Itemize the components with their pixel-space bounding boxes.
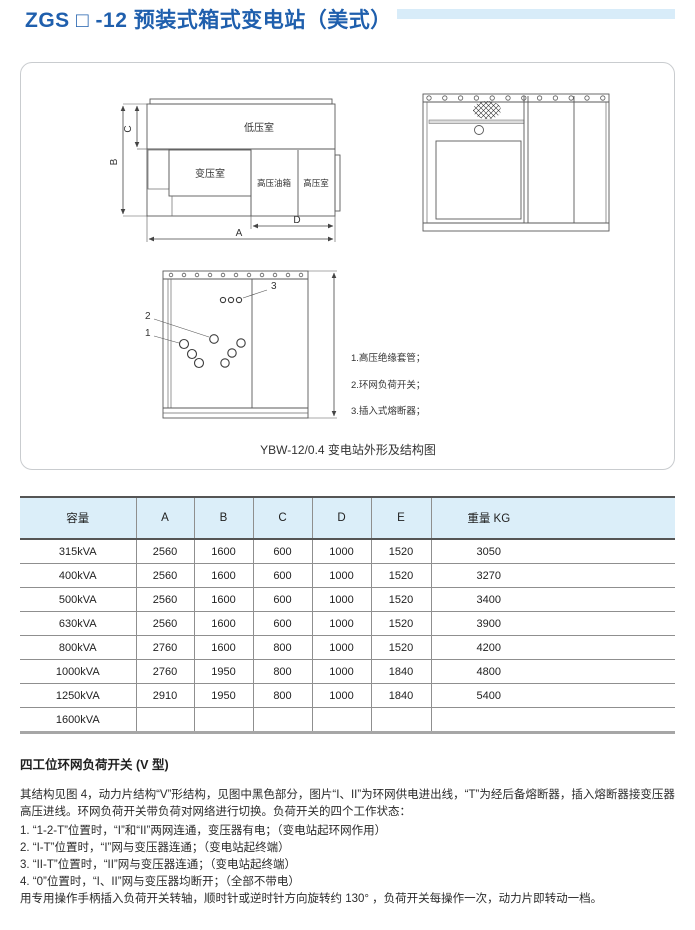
table-cell: 1600 — [194, 636, 253, 660]
title-accent-bar — [397, 9, 675, 19]
table-cell: 500kVA — [20, 588, 136, 612]
callout-2: 2 — [145, 311, 151, 322]
col-header-a: A — [136, 497, 194, 539]
elevation-emblem — [473, 101, 501, 119]
table-cell: 2560 — [136, 588, 194, 612]
table-cell — [431, 708, 675, 733]
table-cell: 1000 — [312, 588, 371, 612]
elevation-bolt-row — [427, 96, 605, 100]
legend-item-1: 1.高压绝缘套管； — [351, 352, 425, 364]
col-header-d: D — [312, 497, 371, 539]
work-state-item: 4. “0”位置时，“I、II”网与变压器均断开；（全部不带电） — [20, 874, 678, 891]
table-cell: 1000 — [312, 660, 371, 684]
table-cell: 1600 — [194, 612, 253, 636]
table-cell: 1950 — [194, 684, 253, 708]
table-header-row: 容量 A B C D E 重量 KG — [20, 497, 675, 539]
structure-view-diagram: 3 2 1 1.高压绝缘套管； 2.环网负荷开关； 3.插入式熔断器； — [145, 271, 425, 418]
section-heading: 四工位环网负荷开关 (V 型) — [20, 754, 678, 773]
table-cell: 600 — [253, 564, 312, 588]
col-header-c: C — [253, 497, 312, 539]
table-row: 500kVA 2560 1600 600 1000 1520 3400 — [20, 588, 675, 612]
plan-louver-bottom — [172, 196, 251, 216]
table-cell: 1520 — [371, 564, 431, 588]
table-cell: 2560 — [136, 539, 194, 564]
table-cell: 1000 — [312, 612, 371, 636]
plan-roof — [150, 99, 332, 104]
table-cell: 600 — [253, 588, 312, 612]
table-cell: 1000 — [312, 564, 371, 588]
plan-right-tab — [335, 155, 340, 211]
table-cell: 1840 — [371, 660, 431, 684]
table-cell: 3400 — [431, 588, 675, 612]
table-cell: 5400 — [431, 684, 675, 708]
callout-1: 1 — [145, 328, 151, 339]
table-cell: 1000 — [312, 636, 371, 660]
structure-legend: 1.高压绝缘套管； 2.环网负荷开关； 3.插入式熔断器； — [351, 352, 425, 417]
dim-a-label: A — [236, 228, 243, 239]
table-cell: 3050 — [431, 539, 675, 564]
table-cell: 1000kVA — [20, 660, 136, 684]
structure-bolt-row — [169, 273, 303, 277]
table-cell: 800 — [253, 660, 312, 684]
low-voltage-room-label: 低压室 — [244, 121, 274, 134]
table-cell: 600 — [253, 539, 312, 564]
table-cell: 1520 — [371, 636, 431, 660]
plan-outline — [147, 104, 335, 216]
substation-drawings: 低压室 变压室 高压油箱 高压室 C B D A — [21, 63, 674, 469]
table-cell: 800kVA — [20, 636, 136, 660]
table-cell: 315kVA — [20, 539, 136, 564]
table-row: 1000kVA 2760 1950 800 1000 1840 4800 — [20, 660, 675, 684]
table-cell: 1000 — [312, 684, 371, 708]
table-cell — [312, 708, 371, 733]
callout-3: 3 — [271, 281, 277, 292]
table-row: 800kVA 2760 1600 800 1000 1520 4200 — [20, 636, 675, 660]
table-cell: 2560 — [136, 612, 194, 636]
table-cell: 1600 — [194, 588, 253, 612]
work-state-item: 1. “1-2-T”位置时，“I”和“II”两网连通，变压器有电；（变电站起环网… — [20, 823, 678, 840]
figure-caption: YBW-12/0.4 变电站外形及结构图 — [260, 442, 436, 457]
hv-room-label: 高压室 — [303, 178, 329, 188]
section-outro: 用专用操作手柄插入负荷开关转轴，顺时针或逆时针方向旋转约 130° ，负荷开关每… — [20, 891, 678, 908]
plan-view-diagram: 低压室 变压室 高压油箱 高压室 C B D A — [109, 99, 340, 242]
figure-panel: 低压室 变压室 高压油箱 高压室 C B D A — [20, 62, 675, 470]
dim-c-label: C — [123, 125, 134, 132]
transformer-room-label: 变压室 — [195, 167, 225, 180]
table-cell: 1600 — [194, 539, 253, 564]
table-cell: 1600 — [194, 564, 253, 588]
table-cell: 4800 — [431, 660, 675, 684]
col-header-e: E — [371, 497, 431, 539]
hv-bushings — [180, 335, 246, 368]
table-cell — [253, 708, 312, 733]
dimensions-table: 容量 A B C D E 重量 KG 315kVA 2560 1600 600 … — [20, 496, 675, 734]
table-cell: 1250kVA — [20, 684, 136, 708]
table-cell: 1000 — [312, 539, 371, 564]
table-cell: 600 — [253, 612, 312, 636]
table-cell: 400kVA — [20, 564, 136, 588]
table-cell: 2760 — [136, 660, 194, 684]
section-intro: 其结构见图 4，动力片结构“V”形结构，见图中黑色部分，图片“I、II”为环网供… — [20, 787, 678, 820]
table-cell: 2910 — [136, 684, 194, 708]
table-cell: 800 — [253, 684, 312, 708]
table-cell: 2760 — [136, 636, 194, 660]
col-header-weight: 重量 KG — [431, 497, 675, 539]
front-elevation-diagram — [423, 94, 609, 231]
table-cell — [371, 708, 431, 733]
col-header-capacity: 容量 — [20, 497, 136, 539]
work-state-item: 2. “I-T”位置时，“I”网与变压器连通；（变电站起终端） — [20, 840, 678, 857]
elevation-grille — [436, 141, 521, 219]
work-state-item: 3. “II-T”位置时，“II”网与变压器连通；（变电站起终端） — [20, 857, 678, 874]
dim-b-label: B — [109, 158, 120, 165]
table-row: 315kVA 2560 1600 600 1000 1520 3050 — [20, 539, 675, 564]
table-cell: 1840 — [371, 684, 431, 708]
legend-item-2: 2.环网负荷开关； — [351, 379, 425, 391]
fuse-ports — [220, 297, 241, 302]
page-title: ZGS □ -12 预装式箱式变电站（美式） — [25, 4, 392, 34]
table-cell — [194, 708, 253, 733]
plan-louver-left — [148, 150, 169, 189]
switch-description-section: 四工位环网负荷开关 (V 型) 其结构见图 4，动力片结构“V”形结构，见图中黑… — [20, 754, 678, 908]
elevation-outline — [423, 94, 609, 231]
table-cell: 630kVA — [20, 612, 136, 636]
table-cell: 1520 — [371, 588, 431, 612]
table-cell: 800 — [253, 636, 312, 660]
table-cell: 2560 — [136, 564, 194, 588]
table-row: 1600kVA — [20, 708, 675, 733]
table-cell — [136, 708, 194, 733]
table-row: 400kVA 2560 1600 600 1000 1520 3270 — [20, 564, 675, 588]
hv-oil-tank-label: 高压油箱 — [257, 178, 292, 188]
table-cell: 1520 — [371, 539, 431, 564]
table-cell: 1520 — [371, 612, 431, 636]
elevation-band — [429, 120, 524, 124]
table-cell: 1600kVA — [20, 708, 136, 733]
table-row: 630kVA 2560 1600 600 1000 1520 3900 — [20, 612, 675, 636]
elevation-handle — [475, 126, 484, 135]
table-cell: 4200 — [431, 636, 675, 660]
table-row: 1250kVA 2910 1950 800 1000 1840 5400 — [20, 684, 675, 708]
table-cell: 1950 — [194, 660, 253, 684]
table-cell: 3900 — [431, 612, 675, 636]
table-cell: 3270 — [431, 564, 675, 588]
col-header-b: B — [194, 497, 253, 539]
legend-item-3: 3.插入式熔断器； — [351, 405, 425, 417]
dim-d-label: D — [293, 215, 300, 226]
